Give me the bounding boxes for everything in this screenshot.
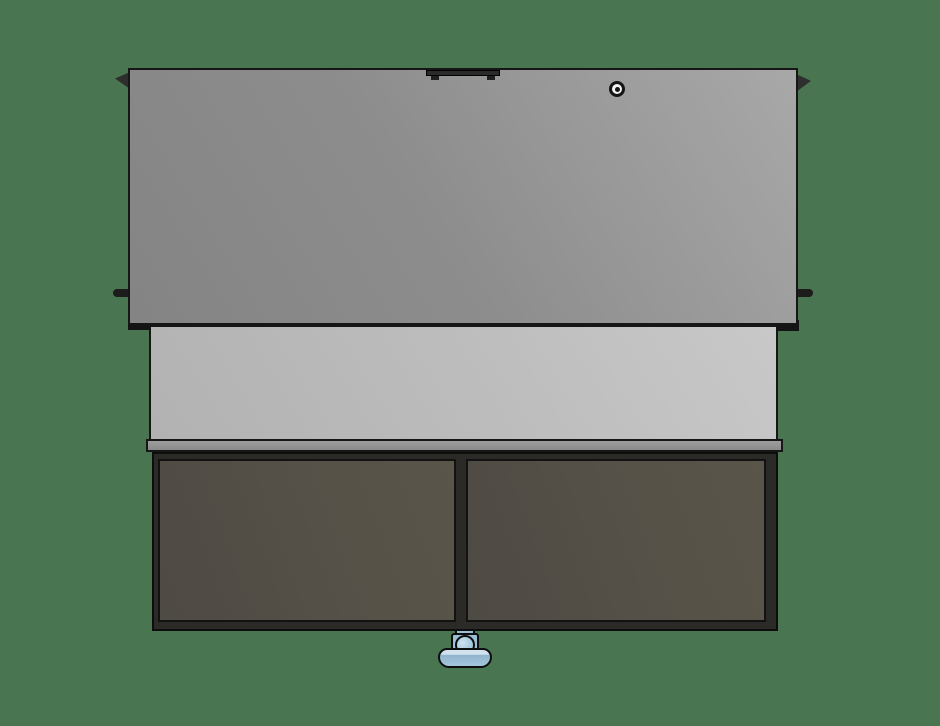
lock-cylinder[interactable] <box>609 81 625 97</box>
scene-background <box>0 0 940 726</box>
desktop-edge[interactable] <box>146 439 783 452</box>
caster-assembly[interactable] <box>438 631 492 668</box>
lock-keyhole-dot <box>615 87 620 92</box>
cabinet-door-left[interactable] <box>158 459 456 622</box>
handle-mount-right <box>487 76 495 80</box>
caster-foot[interactable] <box>438 648 492 668</box>
cabinet-body[interactable] <box>152 452 778 631</box>
hinge-bracket-right[interactable] <box>796 74 811 92</box>
lid-panel[interactable] <box>128 68 798 325</box>
lid-handle[interactable] <box>426 70 500 81</box>
pivot-pin-right[interactable] <box>797 289 813 297</box>
back-panel[interactable] <box>149 325 778 441</box>
handle-mount-left <box>431 76 439 80</box>
cabinet-door-right[interactable] <box>466 459 766 622</box>
pivot-pin-left[interactable] <box>113 289 129 297</box>
